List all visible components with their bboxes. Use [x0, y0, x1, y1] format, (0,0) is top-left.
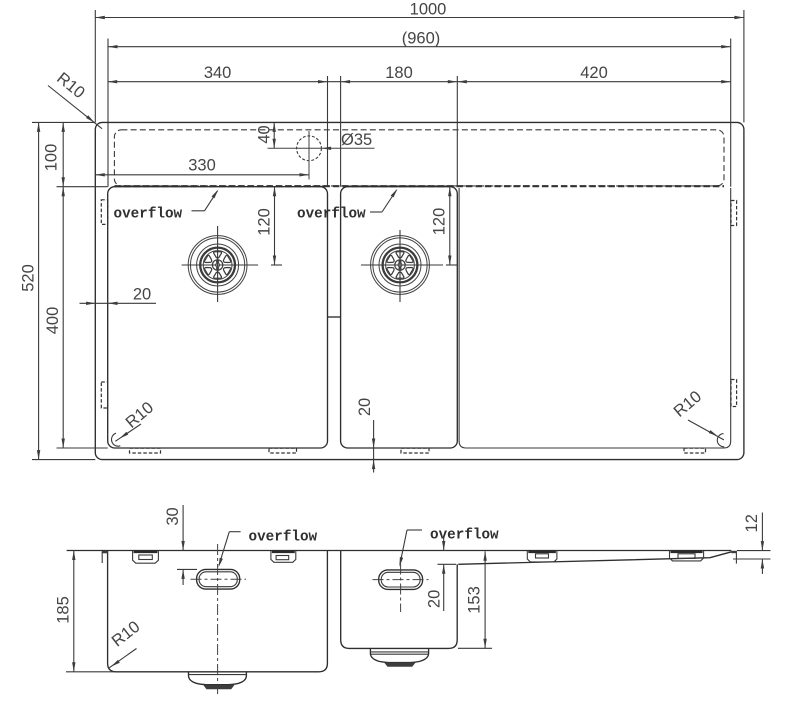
- svg-text:(960): (960): [402, 30, 441, 48]
- svg-text:overflow: overflow: [430, 528, 499, 544]
- svg-text:100: 100: [43, 144, 61, 172]
- svg-text:340: 340: [204, 64, 232, 82]
- svg-text:overflow: overflow: [114, 207, 183, 223]
- svg-text:153: 153: [466, 586, 484, 614]
- svg-text:20: 20: [356, 398, 374, 416]
- svg-text:30: 30: [164, 507, 182, 525]
- svg-text:Ø35: Ø35: [341, 131, 372, 149]
- svg-text:R10: R10: [53, 69, 88, 102]
- svg-text:20: 20: [133, 286, 151, 304]
- svg-text:120: 120: [431, 208, 449, 236]
- svg-text:R10: R10: [670, 388, 705, 421]
- svg-text:1000: 1000: [410, 1, 447, 19]
- svg-text:overflow: overflow: [249, 530, 318, 546]
- svg-text:R10: R10: [122, 399, 157, 432]
- svg-text:420: 420: [580, 64, 608, 82]
- svg-text:12: 12: [743, 514, 761, 532]
- svg-text:40: 40: [256, 125, 274, 143]
- svg-text:R10: R10: [108, 618, 143, 651]
- svg-text:20: 20: [426, 590, 444, 608]
- svg-text:overflow: overflow: [297, 207, 366, 223]
- svg-text:400: 400: [44, 307, 62, 335]
- svg-text:180: 180: [385, 64, 413, 82]
- svg-text:120: 120: [256, 208, 274, 236]
- svg-text:185: 185: [55, 596, 73, 624]
- svg-text:330: 330: [188, 157, 216, 175]
- svg-text:520: 520: [20, 264, 38, 292]
